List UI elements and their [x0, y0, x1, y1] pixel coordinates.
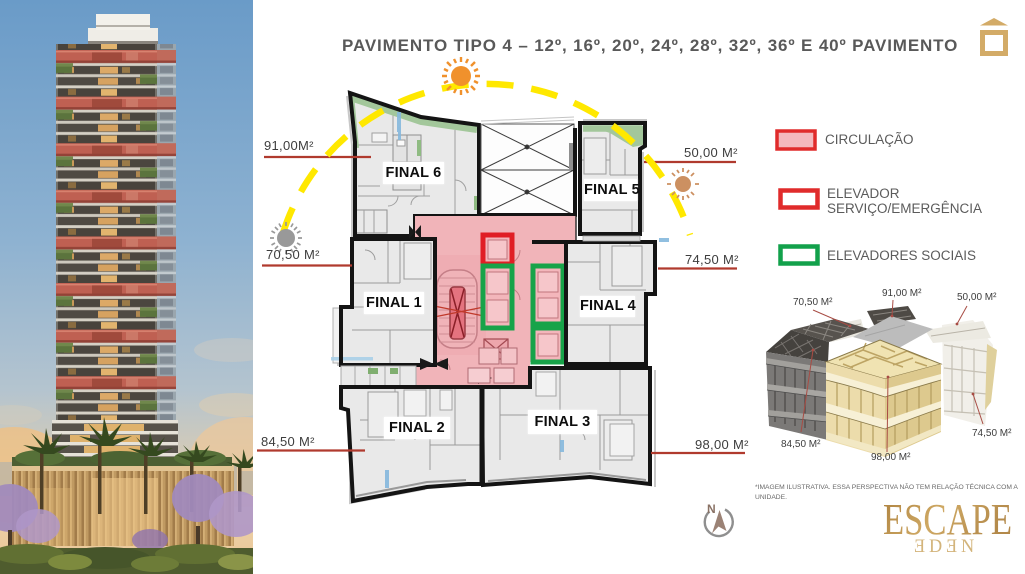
svg-text:ƎDƎN: ƎDƎN — [914, 536, 978, 557]
svg-text:N: N — [707, 502, 716, 516]
